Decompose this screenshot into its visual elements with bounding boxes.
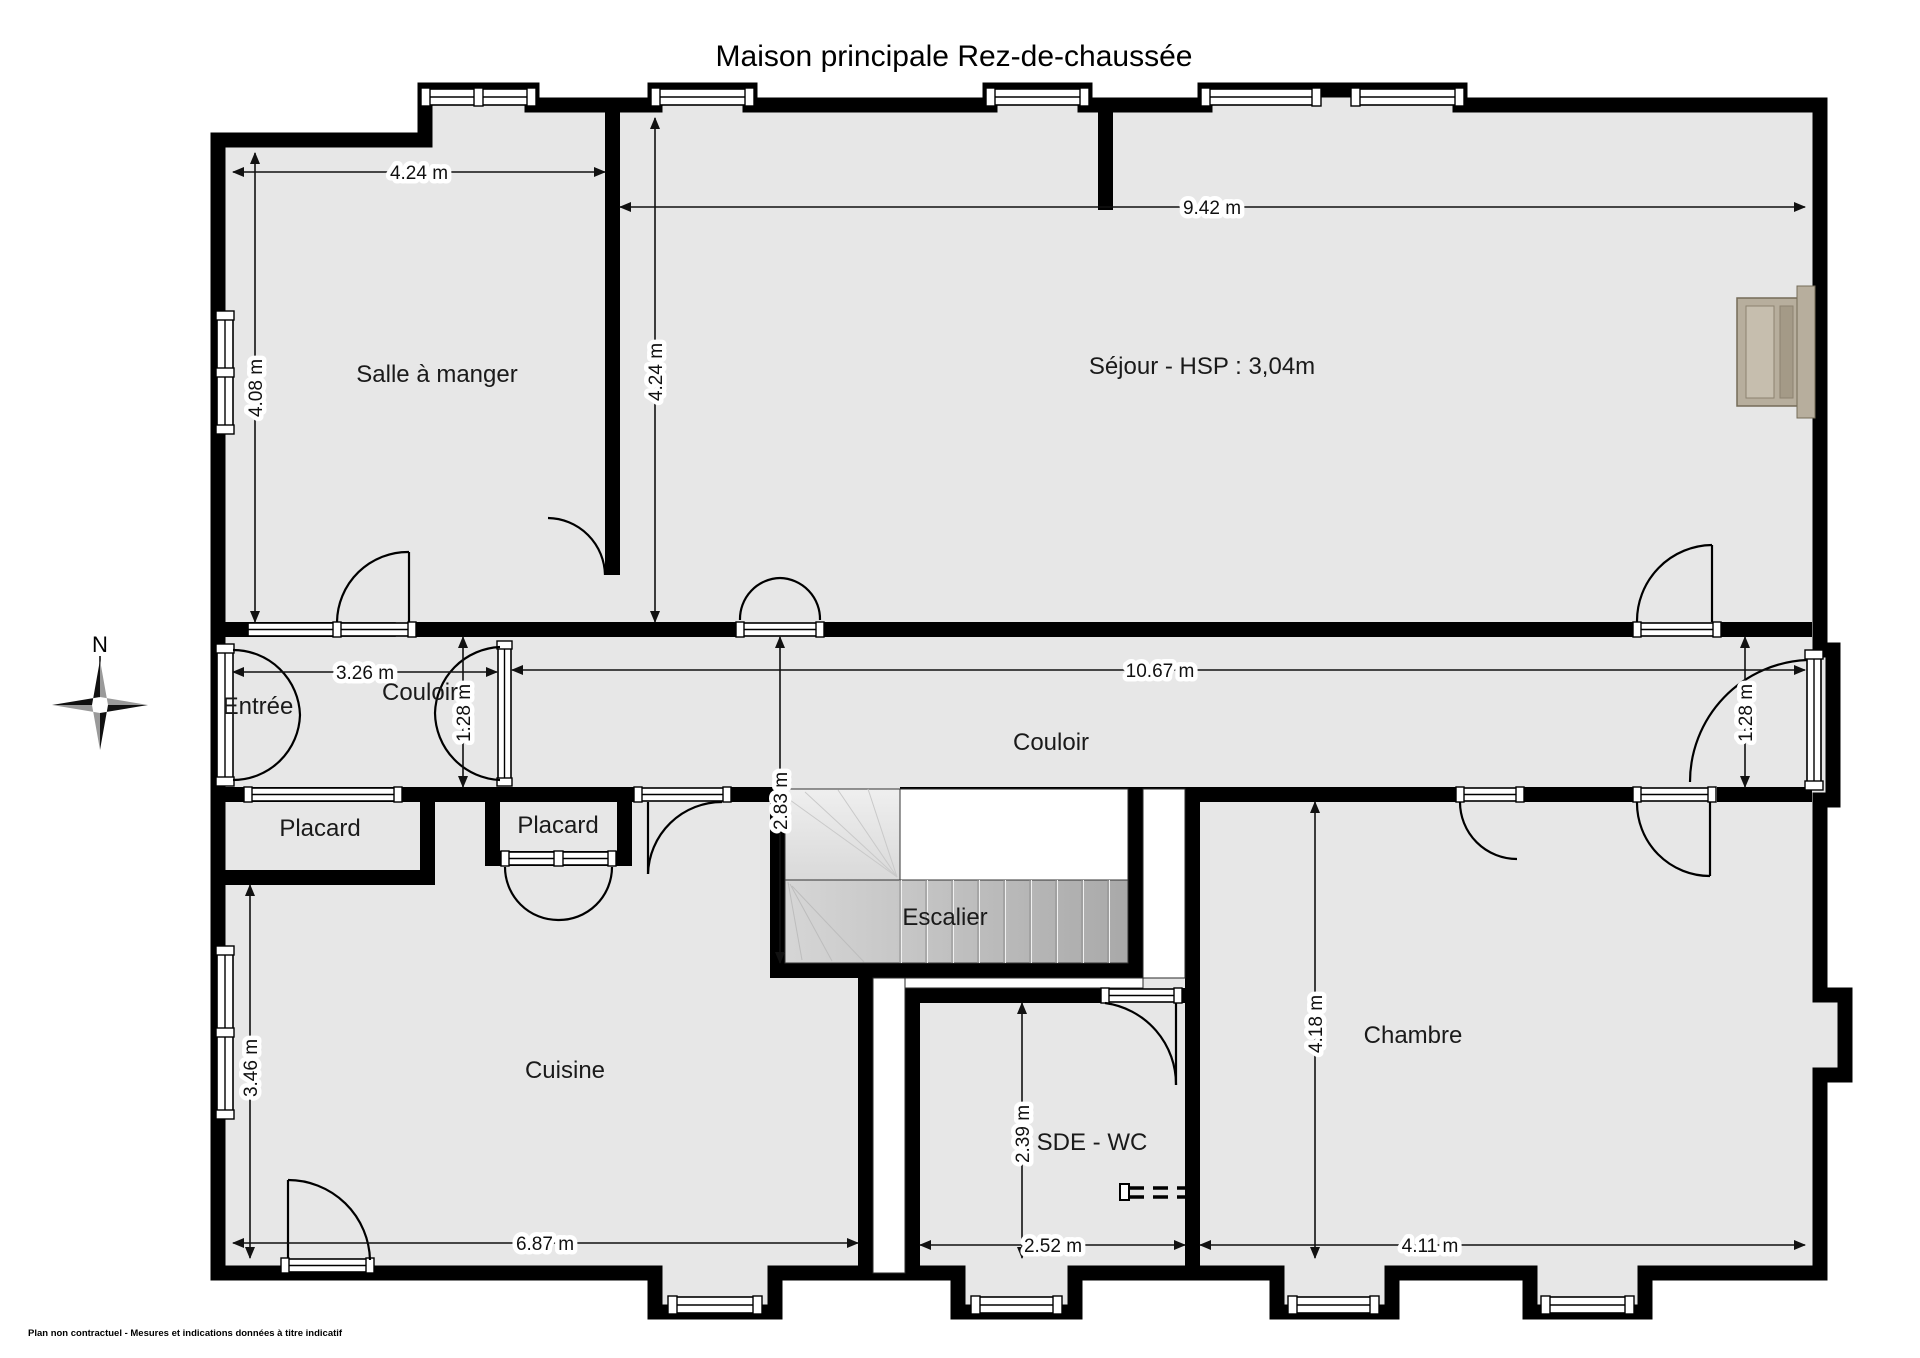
window-chambre-bottom-1 — [1288, 1296, 1379, 1314]
dim-sde-height: 2.39 m — [1013, 1105, 1034, 1163]
window-sejour-1 — [651, 88, 754, 106]
compass-light-points — [52, 660, 148, 750]
dim-chambre-height: 4.18 m — [1306, 995, 1327, 1053]
floor-plan-page: 4.24 m 9.42 m 4.08 m 4.24 m 3.26 m 10.67… — [0, 0, 1920, 1358]
dim-escalier-depth: 2.83 m — [771, 772, 792, 830]
dim-salle-width: 4.24 m — [390, 163, 448, 184]
dim-cuisine-width: 6.87 m — [516, 1234, 574, 1255]
dim-cuisine-height: 3.46 m — [241, 1039, 262, 1097]
plan-title: Maison principale Rez-de-chaussée — [716, 40, 1193, 73]
label-couloir: Couloir — [1013, 729, 1089, 756]
dim-couloir-length: 10.67 m — [1126, 661, 1195, 682]
window-sde-bottom — [971, 1296, 1062, 1314]
floor-plan-canvas: 4.24 m 9.42 m 4.08 m 4.24 m 3.26 m 10.67… — [0, 0, 1920, 1358]
compass-north-label: N — [92, 632, 108, 657]
window-sejour-3 — [1201, 88, 1321, 106]
placard1-sill — [244, 787, 402, 802]
dim-chambre-width: 4.11 m — [1402, 1236, 1459, 1257]
stair-notch-void — [900, 789, 1128, 880]
void-below-stairs — [905, 978, 1143, 988]
label-placard-1: Placard — [279, 815, 360, 842]
label-cuisine: Cuisine — [525, 1057, 605, 1084]
dim-sejour-height: 4.24 m — [646, 343, 667, 401]
label-placard-2: Placard — [517, 812, 598, 839]
window-salle-left — [216, 311, 234, 434]
window-sejour-4 — [1351, 88, 1464, 106]
compass: N — [52, 632, 148, 750]
label-chambre: Chambre — [1364, 1022, 1463, 1049]
window-sejour-2 — [986, 88, 1089, 106]
label-couloir-ouest: Couloir — [382, 679, 458, 706]
dim-salle-height: 4.08 m — [246, 359, 267, 417]
label-salle-a-manger: Salle à manger — [356, 361, 517, 388]
window-cuisine-bottom — [668, 1296, 762, 1314]
label-sde-wc: SDE - WC — [1037, 1129, 1148, 1156]
dim-couloir-est-width: 1.28 m — [1736, 684, 1757, 742]
window-chambre-bottom-2 — [1541, 1296, 1634, 1314]
plan-disclaimer: Plan non contractuel - Mesures et indica… — [28, 1328, 343, 1339]
label-sejour: Séjour - HSP : 3,04m — [1089, 353, 1315, 380]
window-cuisine-left — [216, 946, 234, 1119]
void-cuisine-sde — [873, 978, 905, 1273]
dim-sejour-width: 9.42 m — [1183, 198, 1241, 219]
fireplace — [1737, 286, 1815, 418]
window-salle-bay — [421, 88, 536, 106]
label-entree: Entrée — [223, 693, 294, 720]
label-escalier: Escalier — [902, 904, 987, 931]
void-right-of-stairs — [1143, 789, 1185, 978]
dim-sde-width: 2.52 m — [1024, 1236, 1082, 1257]
